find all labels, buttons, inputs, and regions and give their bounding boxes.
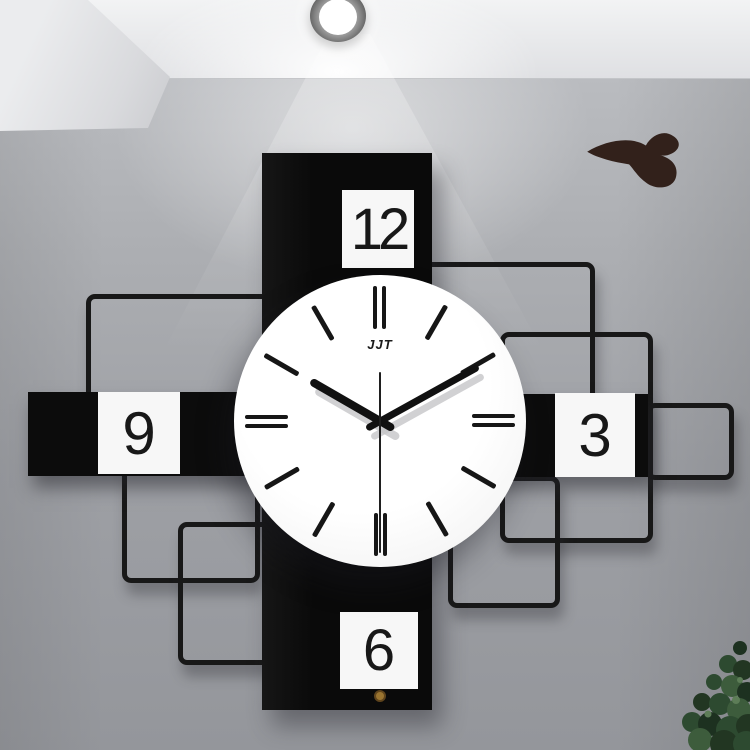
numeral-square-3: 3: [555, 393, 635, 477]
room-scene: 12 3 6 9 JJT: [0, 0, 750, 750]
numeral-square-12: 12: [342, 190, 414, 268]
numeral-6: 6: [363, 617, 395, 684]
bird-shape: [587, 133, 679, 187]
hand-shadows: [239, 284, 531, 576]
numeral-12: 12: [351, 196, 406, 263]
clock-center-cap: [374, 690, 386, 702]
bird-decal-icon: [583, 128, 693, 208]
clock-face: JJT: [234, 275, 526, 567]
numeral-3: 3: [578, 401, 611, 470]
wire-rect-far-right: [646, 403, 734, 480]
plant-foliage: [682, 641, 750, 750]
numeral-square-9: 9: [98, 392, 180, 474]
spotlight-bulb: [319, 0, 357, 35]
second-hand: [379, 372, 381, 553]
numeral-square-6: 6: [340, 612, 418, 689]
numeral-9: 9: [122, 399, 155, 468]
corner-plant: [640, 630, 750, 750]
